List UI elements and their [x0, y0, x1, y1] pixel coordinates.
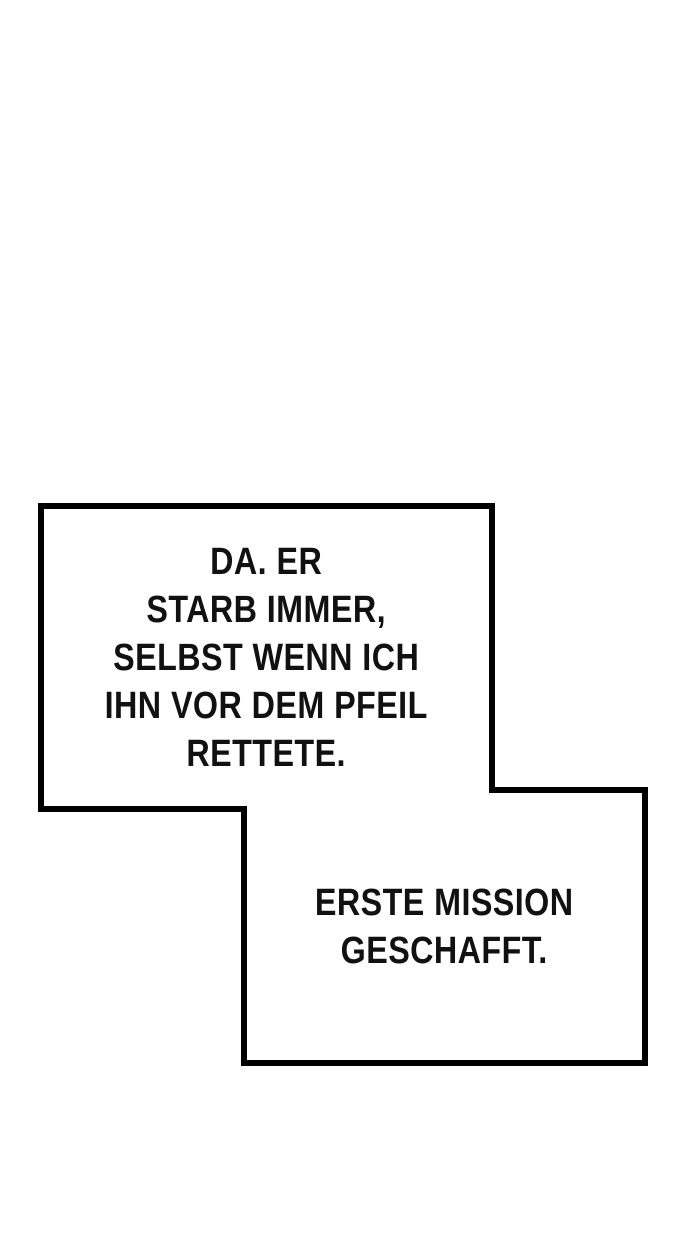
comic-panel: DA. ER STARB IMMER, SELBST WENN ICH IHN … — [0, 0, 690, 1240]
speech-bubble-text-2: ERSTE MISSION GESCHAFFT. — [241, 787, 648, 1066]
speech-bubble-text-1: DA. ER STARB IMMER, SELBST WENN ICH IHN … — [38, 503, 495, 812]
speech-bubble-text-1-lines: DA. ER STARB IMMER, SELBST WENN ICH IHN … — [33, 538, 499, 778]
speech-bubble-text-2-lines: ERSTE MISSION GESCHAFFT. — [237, 879, 652, 975]
